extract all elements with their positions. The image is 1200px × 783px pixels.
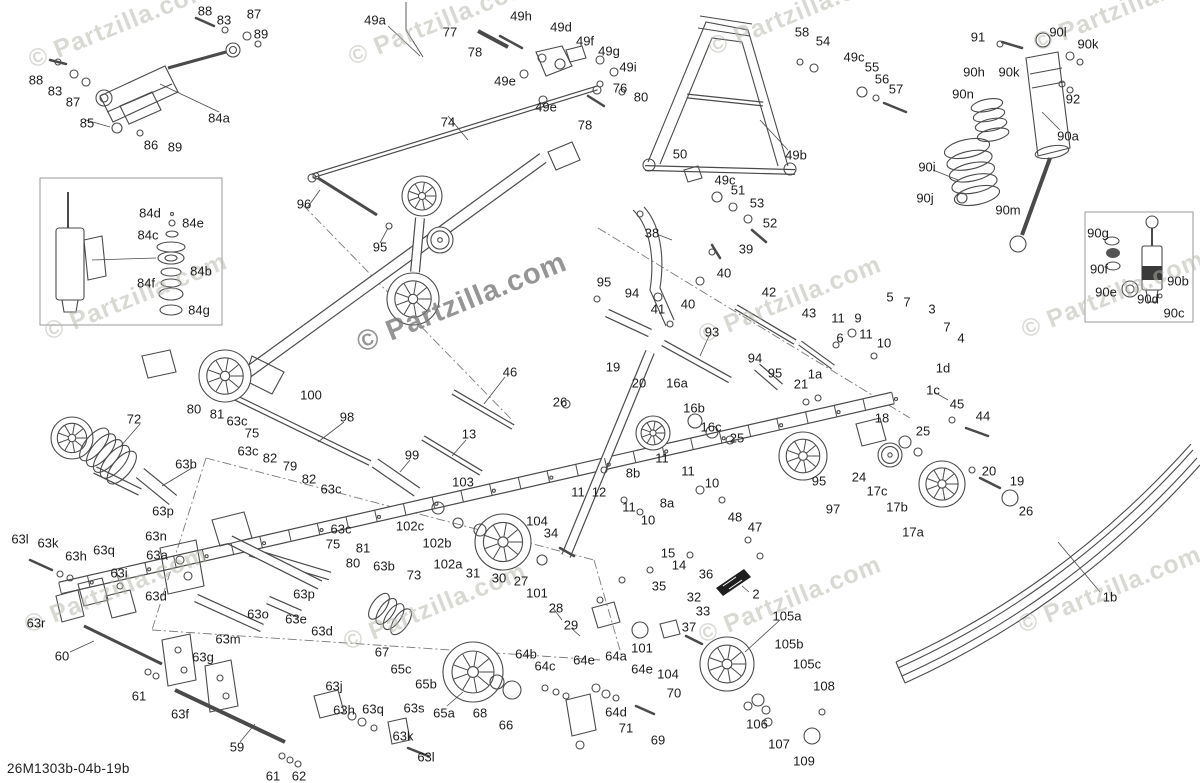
part-label-19: 19 bbox=[606, 361, 620, 374]
part-label-63q: 63q bbox=[362, 703, 384, 716]
part-label-84c: 84c bbox=[138, 229, 159, 242]
part-label-95: 95 bbox=[812, 475, 826, 488]
part-label-63j: 63j bbox=[325, 680, 342, 693]
part-label-78: 78 bbox=[578, 119, 592, 132]
part-label-14: 14 bbox=[672, 559, 686, 572]
part-label-16a: 16a bbox=[666, 377, 688, 390]
part-label-95: 95 bbox=[597, 276, 611, 289]
part-label-37: 37 bbox=[682, 621, 696, 634]
part-label-84a: 84a bbox=[208, 112, 230, 125]
part-label-31: 31 bbox=[466, 567, 480, 580]
part-label-63k: 63k bbox=[393, 730, 414, 743]
part-label-1c: 1c bbox=[926, 384, 940, 397]
part-label-84f: 84f bbox=[137, 277, 155, 290]
part-label-61: 61 bbox=[266, 770, 280, 783]
part-label-63n: 63n bbox=[145, 530, 167, 543]
part-label-46: 46 bbox=[503, 366, 517, 379]
part-label-75: 75 bbox=[326, 538, 340, 551]
part-label-90i: 90i bbox=[918, 161, 935, 174]
part-label-108: 108 bbox=[813, 680, 835, 693]
part-label-33: 33 bbox=[696, 605, 710, 618]
part-label-63h: 63h bbox=[333, 704, 355, 717]
part-label-84d: 84d bbox=[139, 207, 161, 220]
part-label-54: 54 bbox=[816, 35, 830, 48]
part-label-61: 61 bbox=[132, 690, 146, 703]
part-label-64d: 64d bbox=[605, 706, 627, 719]
part-label-4: 4 bbox=[957, 332, 964, 345]
part-label-63g: 63g bbox=[192, 651, 214, 664]
part-label-72: 72 bbox=[127, 413, 141, 426]
part-label-10: 10 bbox=[641, 514, 655, 527]
part-label-16c: 16c bbox=[701, 421, 722, 434]
part-label-16b: 16b bbox=[683, 402, 705, 415]
part-label-65b: 65b bbox=[415, 678, 437, 691]
part-label-11: 11 bbox=[571, 486, 585, 499]
part-label-63o: 63o bbox=[247, 608, 269, 621]
part-label-84b: 84b bbox=[190, 265, 212, 278]
part-label-63l: 63l bbox=[417, 751, 434, 764]
part-label-101: 101 bbox=[526, 587, 548, 600]
part-label-63r: 63r bbox=[27, 617, 46, 630]
part-label-83: 83 bbox=[217, 14, 231, 27]
part-label-63k: 63k bbox=[38, 537, 59, 550]
part-label-63b: 63b bbox=[175, 458, 197, 471]
part-label-49h: 49h bbox=[510, 10, 532, 23]
part-label-63s: 63s bbox=[404, 702, 425, 715]
part-label-1b: 1b bbox=[1103, 591, 1117, 604]
part-label-17c: 17c bbox=[867, 485, 888, 498]
diagram-code: 26M1303b-04b-19b bbox=[7, 761, 130, 776]
part-label-82: 82 bbox=[263, 452, 277, 465]
part-label-102c: 102c bbox=[396, 520, 424, 533]
part-label-65c: 65c bbox=[391, 663, 412, 676]
part-label-44: 44 bbox=[976, 410, 990, 423]
part-label-17a: 17a bbox=[902, 526, 924, 539]
part-label-8a: 8a bbox=[660, 497, 674, 510]
part-label-105c: 105c bbox=[793, 658, 821, 671]
part-label-11: 11 bbox=[655, 452, 669, 465]
part-label-65a: 65a bbox=[433, 707, 455, 720]
part-label-25: 25 bbox=[730, 432, 744, 445]
part-label-1a: 1a bbox=[808, 368, 822, 381]
part-label-90b: 90b bbox=[1167, 275, 1189, 288]
part-label-63d: 63d bbox=[145, 590, 167, 603]
part-label-80: 80 bbox=[187, 403, 201, 416]
part-label-67: 67 bbox=[375, 646, 389, 659]
part-label-90l: 90l bbox=[1049, 26, 1066, 39]
part-label-89: 89 bbox=[168, 141, 182, 154]
part-label-58: 58 bbox=[795, 26, 809, 39]
part-label-2: 2 bbox=[752, 588, 759, 601]
part-label-105a: 105a bbox=[773, 610, 802, 623]
part-label-11: 11 bbox=[681, 465, 695, 478]
part-label-63i: 63i bbox=[110, 567, 127, 580]
part-label-49f: 49f bbox=[576, 35, 594, 48]
part-label-38: 38 bbox=[645, 227, 659, 240]
part-label-88: 88 bbox=[29, 74, 43, 87]
part-label-70: 70 bbox=[667, 687, 681, 700]
part-label-62: 62 bbox=[292, 770, 306, 783]
part-label-71: 71 bbox=[619, 722, 633, 735]
part-label-59: 59 bbox=[230, 741, 244, 754]
part-label-78: 78 bbox=[468, 46, 482, 59]
part-label-64e: 64e bbox=[573, 654, 595, 667]
part-label-102b: 102b bbox=[423, 537, 452, 550]
part-label-7: 7 bbox=[943, 321, 950, 334]
part-label-84e: 84e bbox=[182, 217, 204, 230]
part-label-94: 94 bbox=[748, 352, 762, 365]
part-label-63c: 63c bbox=[238, 445, 259, 458]
part-label-49a: 49a bbox=[364, 14, 386, 27]
part-label-63l: 63l bbox=[11, 533, 28, 546]
part-label-6: 6 bbox=[836, 332, 843, 345]
part-label-45: 45 bbox=[950, 398, 964, 411]
part-label-75: 75 bbox=[245, 427, 259, 440]
part-label-81: 81 bbox=[356, 542, 370, 555]
part-label-9: 9 bbox=[854, 312, 861, 325]
part-label-63e: 63e bbox=[285, 613, 307, 626]
part-label-49g: 49g bbox=[598, 45, 620, 58]
part-label-90c: 90c bbox=[1164, 307, 1185, 320]
part-label-11: 11 bbox=[859, 328, 873, 341]
part-label-42: 42 bbox=[762, 286, 776, 299]
part-label-26: 26 bbox=[553, 396, 567, 409]
part-label-49i: 49i bbox=[619, 61, 636, 74]
part-label-49d: 49d bbox=[550, 21, 572, 34]
part-label-95: 95 bbox=[373, 241, 387, 254]
part-label-101: 101 bbox=[631, 642, 653, 655]
part-label-77: 77 bbox=[443, 26, 457, 39]
part-label-90h: 90h bbox=[963, 66, 985, 79]
part-label-11: 11 bbox=[831, 312, 845, 325]
part-label-63p: 63p bbox=[293, 588, 315, 601]
part-label-39: 39 bbox=[739, 243, 753, 256]
part-label-3: 3 bbox=[928, 303, 935, 316]
part-label-87: 87 bbox=[247, 8, 261, 21]
part-label-19: 19 bbox=[1010, 475, 1024, 488]
part-label-90e: 90e bbox=[1095, 286, 1117, 299]
part-label-63m: 63m bbox=[215, 633, 240, 646]
part-label-32: 32 bbox=[687, 591, 701, 604]
part-label-10: 10 bbox=[877, 337, 891, 350]
part-label-12: 12 bbox=[592, 486, 606, 499]
part-label-86: 86 bbox=[144, 139, 158, 152]
part-label-73: 73 bbox=[407, 569, 421, 582]
part-label-18: 18 bbox=[875, 412, 889, 425]
part-label-50: 50 bbox=[673, 148, 687, 161]
part-label-49b: 49b bbox=[785, 149, 807, 162]
part-label-7: 7 bbox=[903, 296, 910, 309]
part-label-84g: 84g bbox=[188, 304, 210, 317]
part-label-24: 24 bbox=[852, 471, 866, 484]
part-label-97: 97 bbox=[826, 503, 840, 516]
part-label-102a: 102a bbox=[434, 558, 463, 571]
part-label-21: 21 bbox=[794, 378, 808, 391]
part-label-100: 100 bbox=[300, 389, 322, 402]
part-label-layer: 8883878988838785868984a84d84e84c84b84f84… bbox=[0, 0, 1200, 783]
part-label-74: 74 bbox=[441, 116, 455, 129]
part-label-89: 89 bbox=[254, 28, 268, 41]
part-label-90m: 90m bbox=[995, 204, 1020, 217]
part-label-36: 36 bbox=[699, 568, 713, 581]
part-label-90d: 90d bbox=[1137, 293, 1159, 306]
part-label-92: 92 bbox=[1066, 93, 1080, 106]
part-label-63a: 63a bbox=[146, 549, 168, 562]
part-label-63b: 63b bbox=[373, 560, 395, 573]
part-label-109: 109 bbox=[793, 755, 815, 768]
part-label-80: 80 bbox=[346, 557, 360, 570]
part-label-88: 88 bbox=[198, 5, 212, 18]
part-label-51: 51 bbox=[731, 184, 745, 197]
part-label-64c: 64c bbox=[535, 660, 556, 673]
part-label-63q: 63q bbox=[93, 544, 115, 557]
part-label-90a: 90a bbox=[1057, 130, 1079, 143]
part-label-20: 20 bbox=[632, 377, 646, 390]
part-label-90g: 90g bbox=[1087, 227, 1109, 240]
part-label-81: 81 bbox=[210, 408, 224, 421]
part-label-8b: 8b bbox=[626, 467, 640, 480]
part-label-90j: 90j bbox=[916, 192, 933, 205]
part-label-106: 106 bbox=[746, 718, 768, 731]
part-label-57: 57 bbox=[889, 83, 903, 96]
part-label-29: 29 bbox=[564, 619, 578, 632]
part-label-52: 52 bbox=[763, 217, 777, 230]
part-label-98: 98 bbox=[340, 411, 354, 424]
part-label-49e: 49e bbox=[535, 101, 557, 114]
part-label-20: 20 bbox=[982, 465, 996, 478]
part-label-63c: 63c bbox=[331, 523, 352, 536]
part-label-90k: 90k bbox=[1078, 38, 1099, 51]
part-label-63c: 63c bbox=[321, 483, 342, 496]
part-label-103: 103 bbox=[452, 476, 474, 489]
part-label-63h: 63h bbox=[65, 550, 87, 563]
part-label-91: 91 bbox=[971, 31, 985, 44]
part-label-79: 79 bbox=[283, 460, 297, 473]
part-label-80: 80 bbox=[634, 91, 648, 104]
part-label-40: 40 bbox=[717, 267, 731, 280]
part-label-26: 26 bbox=[1019, 505, 1033, 518]
part-label-43: 43 bbox=[802, 307, 816, 320]
part-label-105b: 105b bbox=[775, 638, 804, 651]
part-label-28: 28 bbox=[549, 602, 563, 615]
part-label-63d: 63d bbox=[311, 625, 333, 638]
part-label-83: 83 bbox=[48, 85, 62, 98]
part-label-93: 93 bbox=[705, 326, 719, 339]
part-label-35: 35 bbox=[652, 580, 666, 593]
part-label-66: 66 bbox=[499, 719, 513, 732]
parts-diagram-page: © Partzilla.com© Partzilla.com© Partzill… bbox=[0, 0, 1200, 783]
part-label-107: 107 bbox=[768, 738, 790, 751]
part-label-48: 48 bbox=[728, 511, 742, 524]
part-label-63p: 63p bbox=[152, 505, 174, 518]
part-label-1d: 1d bbox=[936, 362, 950, 375]
part-label-85: 85 bbox=[80, 117, 94, 130]
part-label-34: 34 bbox=[544, 527, 558, 540]
part-label-60: 60 bbox=[55, 650, 69, 663]
part-label-104: 104 bbox=[657, 668, 679, 681]
part-label-68: 68 bbox=[473, 707, 487, 720]
part-label-25: 25 bbox=[916, 425, 930, 438]
part-label-41: 41 bbox=[651, 303, 665, 316]
part-label-94: 94 bbox=[625, 287, 639, 300]
part-label-87: 87 bbox=[66, 96, 80, 109]
part-label-56: 56 bbox=[875, 73, 889, 86]
part-label-30: 30 bbox=[492, 572, 506, 585]
part-label-13: 13 bbox=[462, 428, 476, 441]
part-label-40: 40 bbox=[681, 298, 695, 311]
part-label-49c: 49c bbox=[844, 51, 865, 64]
part-label-90n: 90n bbox=[952, 88, 974, 101]
part-label-82: 82 bbox=[302, 473, 316, 486]
part-label-17b: 17b bbox=[886, 501, 908, 514]
part-label-47: 47 bbox=[748, 521, 762, 534]
part-label-64a: 64a bbox=[605, 650, 627, 663]
part-label-69: 69 bbox=[651, 734, 665, 747]
part-label-53: 53 bbox=[750, 197, 764, 210]
part-label-63f: 63f bbox=[171, 708, 189, 721]
part-label-76: 76 bbox=[613, 82, 627, 95]
part-label-95: 95 bbox=[768, 367, 782, 380]
part-label-10: 10 bbox=[705, 477, 719, 490]
part-label-96: 96 bbox=[297, 198, 311, 211]
part-label-5: 5 bbox=[886, 291, 893, 304]
part-label-49e: 49e bbox=[494, 75, 516, 88]
part-label-64e: 64e bbox=[631, 663, 653, 676]
part-label-99: 99 bbox=[405, 449, 419, 462]
part-label-90f: 90f bbox=[1090, 263, 1108, 276]
part-label-90k: 90k bbox=[999, 66, 1020, 79]
part-label-11: 11 bbox=[622, 501, 636, 514]
